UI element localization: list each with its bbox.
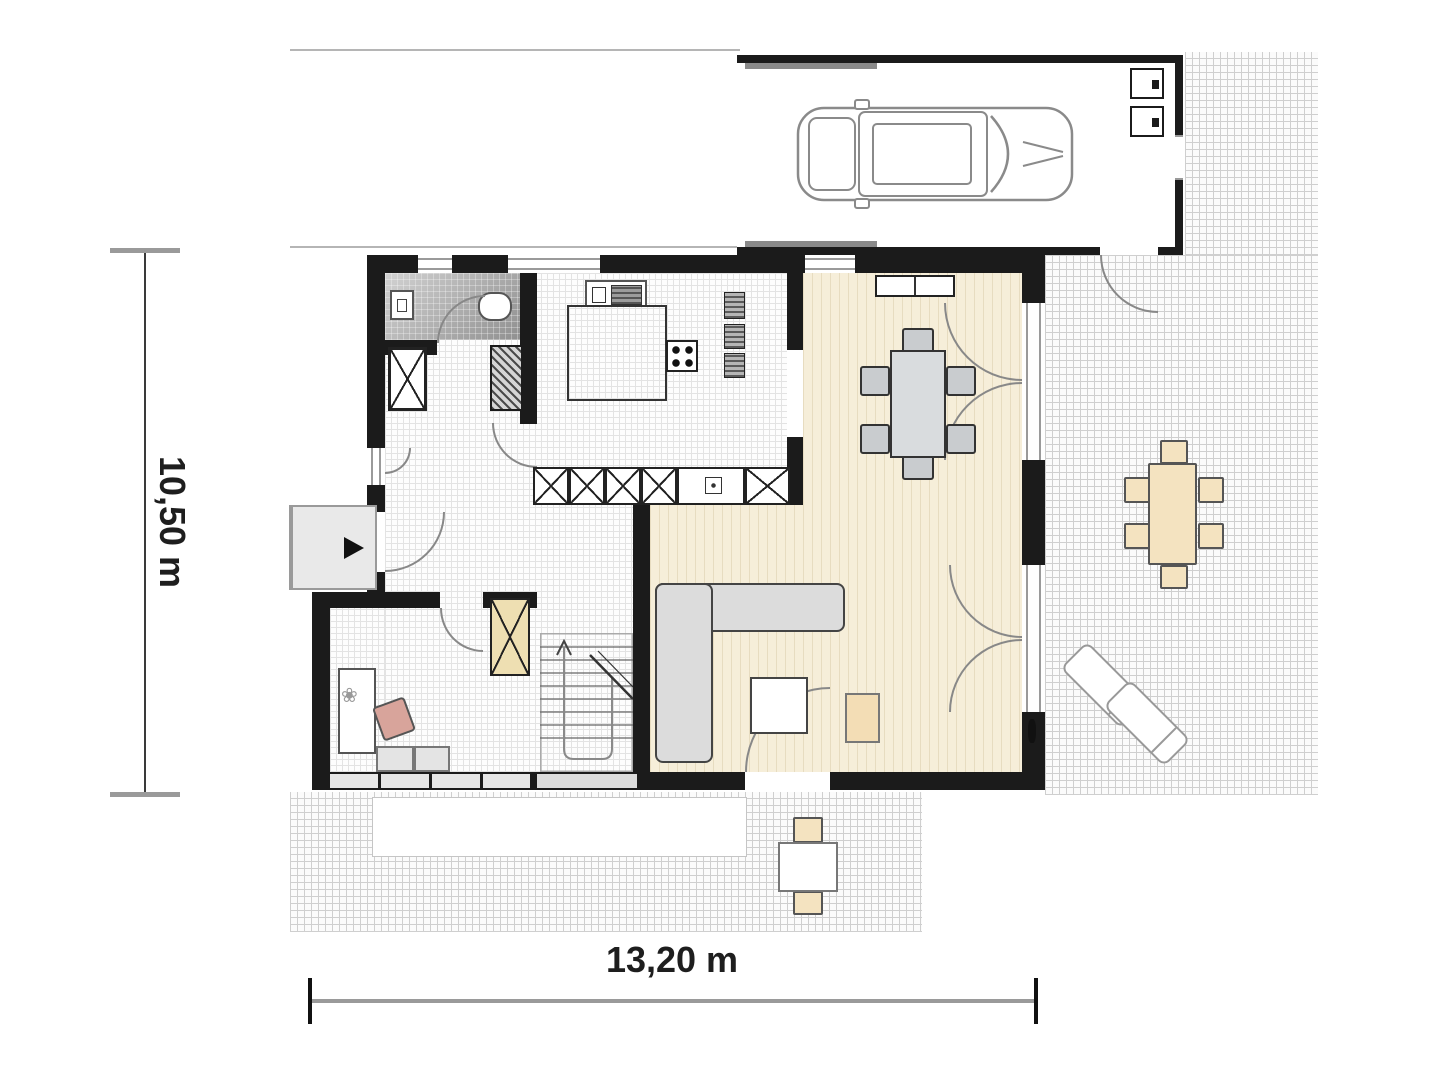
- staircase: [540, 633, 633, 772]
- kitchen-tall-cabinet: [724, 292, 745, 319]
- floor-plan-canvas: ❀ 10,50 m 13,20 m: [0, 0, 1440, 1076]
- garage-door-rail-top: [745, 63, 877, 69]
- vertical-dimension-cap-top: [110, 248, 180, 253]
- horizontal-dimension-cap-left: [308, 978, 312, 1024]
- wc-sink-basin: [397, 299, 407, 312]
- office-cabinet: [376, 746, 414, 772]
- office-top-wall: [312, 592, 440, 608]
- wc-window: [418, 255, 452, 273]
- kitchen-dining-wall-upper: [787, 273, 803, 350]
- stairs-living-wall: [633, 505, 650, 772]
- driveway-edge-bottom: [290, 246, 740, 248]
- shaft-chimney-box: [388, 347, 427, 411]
- car-icon: [795, 98, 1075, 210]
- flower-icon: ❀: [341, 686, 358, 706]
- garage-door-rail-bottom: [745, 241, 877, 247]
- terrace-chair: [1160, 440, 1188, 464]
- dining-table: [890, 350, 946, 458]
- terrace-paving-right-upper: [1185, 52, 1318, 255]
- garage-appliance: [1130, 68, 1164, 99]
- counter-cabinet: [605, 467, 641, 505]
- dining-chair: [860, 366, 890, 396]
- wall-fixture-icon: [1028, 719, 1036, 743]
- dining-chair: [946, 366, 976, 396]
- patio-chair: [793, 891, 823, 915]
- wc-sink: [390, 290, 414, 320]
- patio-table: [778, 842, 838, 892]
- counter-sink-icon: [705, 477, 722, 494]
- driveway-edge-top: [290, 49, 740, 51]
- counter-cabinet: [641, 467, 677, 505]
- hall-niche-window: [367, 448, 385, 485]
- kitchen-tall-cabinet: [724, 353, 745, 378]
- office-left-exterior-wall: [312, 592, 330, 790]
- sofa-corner-patch: [659, 587, 709, 628]
- coat-closet: [490, 345, 523, 411]
- garage-window: [1175, 135, 1183, 180]
- kitchen-sink-basin: [592, 287, 606, 303]
- counter-cabinet: [569, 467, 605, 505]
- height-dimension-label: 10,50 m: [150, 412, 194, 632]
- chimney-box: [490, 598, 530, 676]
- dining-chair: [946, 424, 976, 454]
- dining-french-door: [1022, 303, 1045, 460]
- kitchen-sink-drainer: [611, 285, 642, 305]
- terrace-chair: [1124, 477, 1150, 503]
- appliance-door-icon: [1152, 118, 1159, 127]
- terrace-chair: [1160, 565, 1188, 589]
- walkway: [372, 797, 747, 857]
- kitchen-tall-cabinet: [724, 324, 745, 349]
- counter-cabinet: [745, 467, 790, 505]
- stair-window: [537, 774, 637, 788]
- pouf: [845, 693, 880, 743]
- patio-chair: [793, 817, 823, 843]
- living-terrace-door-opening: [745, 772, 830, 790]
- terrace-chair: [1198, 477, 1224, 503]
- lounger-headrest-line: [1151, 727, 1176, 752]
- dining-window: [805, 255, 855, 273]
- counter-sink-section: [677, 467, 745, 505]
- horizontal-dimension-cap-right: [1034, 978, 1038, 1024]
- office-desk: [338, 668, 376, 754]
- garage-side-door-opening: [1100, 247, 1158, 255]
- kitchen-island: [567, 305, 667, 401]
- horizontal-dimension-line: [310, 999, 1037, 1003]
- dining-chair: [902, 455, 934, 480]
- entrance-arrow-icon: [344, 537, 364, 559]
- office-cabinet: [414, 746, 450, 772]
- terrace-chair: [1198, 523, 1224, 549]
- appliance-door-icon: [1152, 80, 1159, 89]
- terrace-table: [1148, 463, 1197, 565]
- counter-cabinet: [533, 467, 569, 505]
- kitchen-window: [508, 255, 600, 273]
- kitchen-wall-stub: [520, 410, 537, 424]
- office-window: [327, 774, 530, 788]
- width-dimension-label: 13,20 m: [522, 938, 822, 982]
- coffee-table: [750, 677, 808, 734]
- top-exterior-wall: [367, 255, 1045, 273]
- vertical-dimension-line: [144, 250, 146, 795]
- cooktop: [666, 340, 698, 372]
- sideboard: [875, 275, 955, 297]
- kitchen-dining-hatch-opening: [787, 350, 803, 437]
- dining-chair: [860, 424, 890, 454]
- living-french-door: [1022, 565, 1045, 712]
- vertical-dimension-cap-bottom: [110, 792, 180, 797]
- garage-appliance: [1130, 106, 1164, 137]
- terrace-chair: [1124, 523, 1150, 549]
